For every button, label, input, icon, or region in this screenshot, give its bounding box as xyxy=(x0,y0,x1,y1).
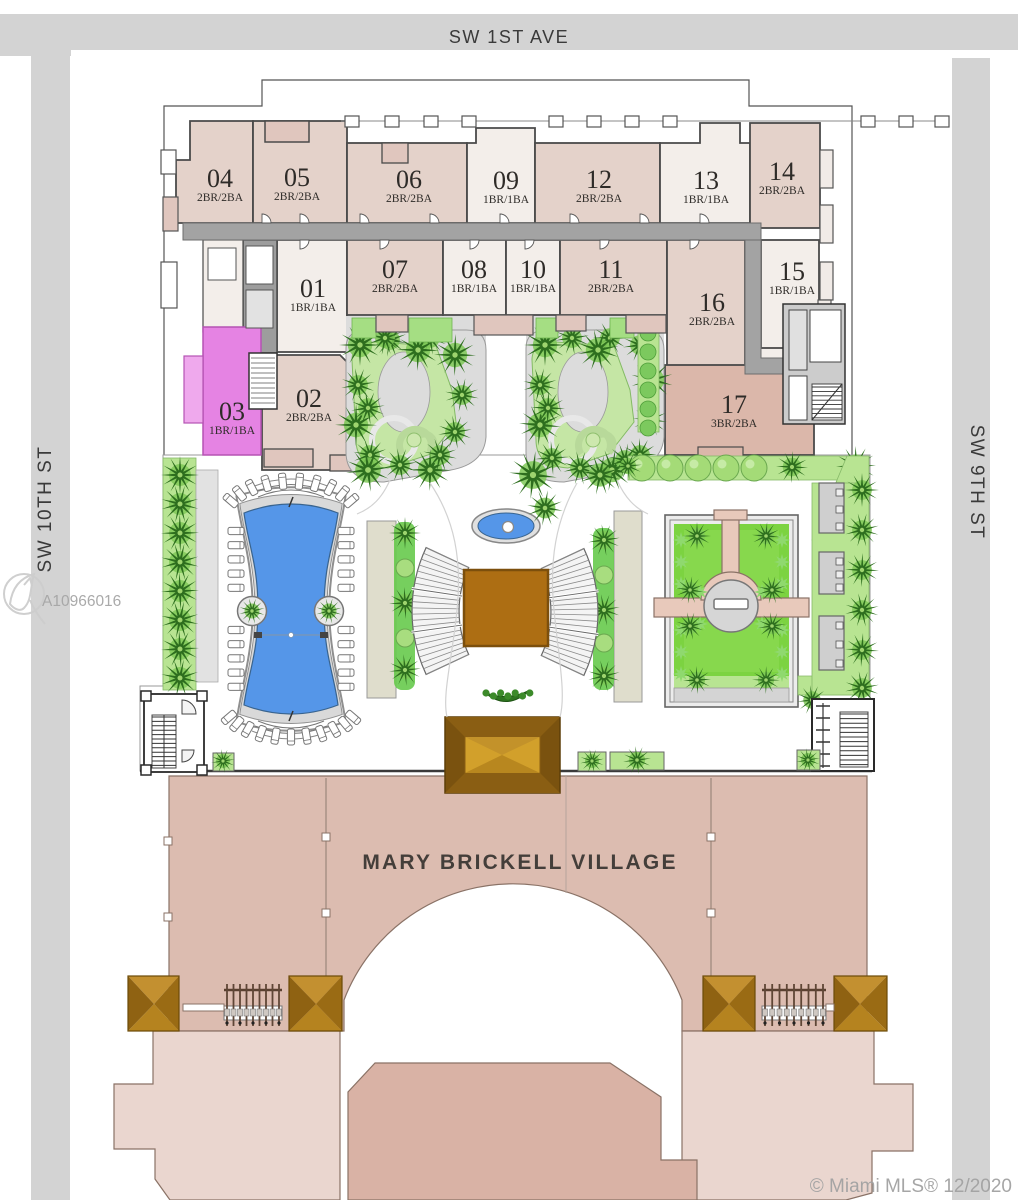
svg-text:2BR/2BA: 2BR/2BA xyxy=(286,412,333,424)
svg-text:03: 03 xyxy=(219,397,245,426)
svg-text:2BR/2BA: 2BR/2BA xyxy=(274,191,321,203)
svg-text:1BR/1BA: 1BR/1BA xyxy=(683,194,730,206)
svg-text:1BR/1BA: 1BR/1BA xyxy=(510,283,557,295)
svg-text:A10966016: A10966016 xyxy=(42,593,121,610)
svg-text:3BR/2BA: 3BR/2BA xyxy=(711,418,758,430)
svg-text:02: 02 xyxy=(296,384,322,413)
svg-text:09: 09 xyxy=(493,166,519,195)
svg-text:17: 17 xyxy=(721,390,747,419)
svg-text:2BR/2BA: 2BR/2BA xyxy=(197,192,244,204)
svg-text:14: 14 xyxy=(769,157,795,186)
svg-text:11: 11 xyxy=(598,255,623,284)
svg-text:2BR/2BA: 2BR/2BA xyxy=(588,283,635,295)
svg-text:MARY BRICKELL VILLAGE: MARY BRICKELL VILLAGE xyxy=(362,851,677,874)
svg-text:1BR/1BA: 1BR/1BA xyxy=(290,302,337,314)
svg-text:1BR/1BA: 1BR/1BA xyxy=(483,194,530,206)
svg-text:01: 01 xyxy=(300,274,326,303)
svg-text:13: 13 xyxy=(693,166,719,195)
svg-text:2BR/2BA: 2BR/2BA xyxy=(759,185,806,197)
svg-text:© Miami MLS® 12/2020: © Miami MLS® 12/2020 xyxy=(810,1176,1012,1197)
svg-text:07: 07 xyxy=(382,255,408,284)
svg-text:SW 1ST AVE: SW 1ST AVE xyxy=(449,27,569,47)
svg-text:2BR/2BA: 2BR/2BA xyxy=(689,316,736,328)
svg-text:SW 9TH ST: SW 9TH ST xyxy=(966,425,987,540)
svg-text:06: 06 xyxy=(396,165,422,194)
svg-text:2BR/2BA: 2BR/2BA xyxy=(576,193,623,205)
svg-text:12: 12 xyxy=(586,165,612,194)
svg-text:SW 10TH ST: SW 10TH ST xyxy=(35,446,56,573)
svg-text:15: 15 xyxy=(779,257,805,286)
svg-text:2BR/2BA: 2BR/2BA xyxy=(372,283,419,295)
svg-text:1BR/1BA: 1BR/1BA xyxy=(209,425,256,437)
svg-text:10: 10 xyxy=(520,255,546,284)
svg-text:05: 05 xyxy=(284,163,310,192)
svg-text:2BR/2BA: 2BR/2BA xyxy=(386,193,433,205)
svg-text:16: 16 xyxy=(699,288,725,317)
svg-text:04: 04 xyxy=(207,164,233,193)
svg-text:1BR/1BA: 1BR/1BA xyxy=(451,283,498,295)
svg-text:08: 08 xyxy=(461,255,487,284)
svg-text:1BR/1BA: 1BR/1BA xyxy=(769,285,816,297)
